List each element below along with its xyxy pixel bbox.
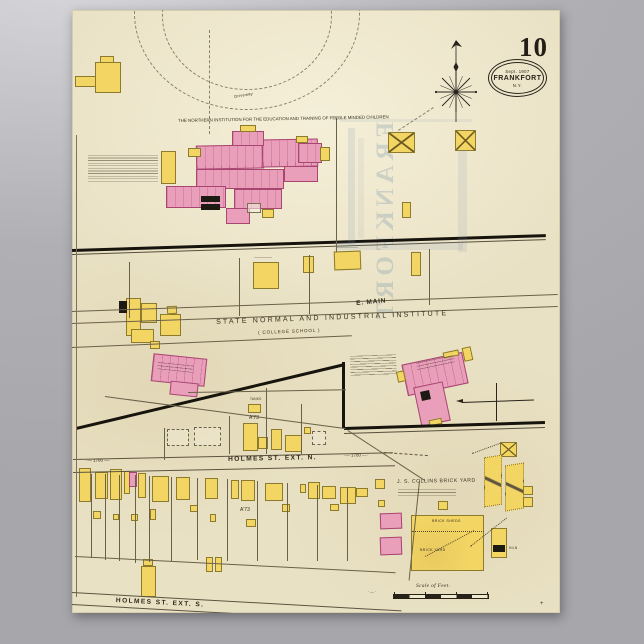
state-normal-title: STATE NORMAL AND INDUSTRIAL INSTITUTE: [216, 310, 448, 326]
compass-rose-icon: [430, 36, 482, 126]
map-line: [266, 388, 267, 454]
map-line: [149, 476, 150, 562]
map-line: [309, 255, 310, 314]
map-feature-layer: THE NORTHERN INSTITUTION FOR THE EDUCATI…: [72, 10, 560, 613]
building: [300, 484, 306, 493]
map-line: [105, 474, 106, 560]
building: [285, 435, 302, 452]
building: [194, 427, 221, 446]
map-line: [336, 118, 337, 252]
factory-notes: [350, 354, 397, 376]
building: [304, 427, 311, 434]
e-main-street: E. MAIN: [356, 298, 387, 307]
tanks-label: TANKS: [250, 398, 261, 401]
building: [231, 480, 239, 499]
building: [284, 166, 318, 182]
building: [150, 341, 160, 349]
building: [232, 131, 264, 146]
building: [201, 196, 220, 202]
building: [138, 473, 146, 498]
building: [160, 314, 181, 336]
building: [201, 204, 220, 210]
publisher-stamp: Sept. 1907 FRANKFORT N.Y.: [488, 59, 547, 97]
building: [455, 130, 476, 151]
building: [262, 209, 274, 218]
map-line: [119, 475, 120, 561]
building: [340, 487, 356, 504]
building: [167, 429, 189, 446]
map-line: [91, 474, 92, 558]
west-arrow-head-icon: [456, 399, 463, 403]
brick-yard-title: J. S. COLLINS BRICK YARD: [397, 479, 476, 486]
a73-upper: A'73: [249, 416, 259, 421]
building: [356, 488, 368, 497]
sanborn-map-poster: FRANKFORT THE NORTHERN INSTITUTION FOR T…: [72, 10, 560, 613]
building: [248, 404, 261, 413]
map-line: [171, 477, 172, 561]
building: [271, 429, 282, 450]
scale-dashes: · — ·: [368, 591, 376, 595]
map-line: [76, 135, 77, 597]
a73-lower: A'73: [240, 508, 250, 513]
map-line: [287, 483, 288, 561]
building: [169, 381, 198, 398]
building: [206, 557, 213, 572]
building: [95, 472, 108, 499]
building: [493, 545, 505, 552]
building: [95, 62, 121, 93]
building: [380, 513, 403, 530]
map-line: [317, 485, 318, 561]
map-line: [229, 416, 230, 454]
building: [484, 455, 502, 508]
map-line: [72, 234, 546, 251]
map-line: [429, 249, 430, 305]
building: [188, 148, 201, 157]
building: [523, 497, 533, 507]
block-number-left: ·— 1700 —·: [86, 459, 110, 464]
building: [330, 504, 339, 511]
brick-yard-label: BRICK YARD: [420, 549, 446, 553]
building: [438, 501, 448, 510]
building: [420, 390, 431, 401]
building: [334, 251, 362, 271]
ghost-bleed-band: [358, 138, 364, 238]
driveway-label: Driveway: [234, 92, 253, 99]
building: [93, 511, 101, 519]
building-label-lines-b: [254, 257, 272, 260]
ghost-bleed-band: [458, 150, 467, 252]
map-line: [129, 262, 130, 318]
building: [79, 468, 91, 502]
building: [296, 136, 308, 143]
map-line: [76, 363, 345, 429]
map-line: [384, 452, 428, 456]
map-line: [227, 479, 228, 561]
building: [523, 486, 533, 495]
building: [411, 252, 421, 276]
building: [161, 151, 176, 184]
building: [241, 480, 255, 501]
college-school-sub: ( COLLEGE SCHOOL ): [258, 329, 320, 336]
building: [375, 479, 385, 489]
map-line: [301, 404, 302, 454]
building: [380, 537, 403, 556]
building: [110, 469, 122, 500]
building: [322, 486, 336, 499]
map-line: [164, 428, 165, 460]
building: [176, 477, 190, 500]
building: [282, 504, 290, 512]
building: [240, 125, 256, 132]
building: [378, 500, 385, 507]
map-line: [496, 383, 497, 421]
map-stage: FRANKFORT THE NORTHERN INSTITUTION FOR T…: [0, 0, 644, 644]
map-line: [239, 258, 240, 316]
brick-yard-notes: [398, 489, 456, 497]
building: [141, 566, 156, 597]
building: [113, 514, 119, 520]
map-line: [472, 443, 501, 454]
map-line: [462, 399, 534, 402]
building: [243, 423, 258, 451]
scale-tick: [425, 592, 426, 595]
building: [505, 462, 524, 511]
scale-tick: [456, 592, 457, 595]
building: [119, 301, 127, 313]
kiln-label: KILN: [509, 547, 517, 550]
building: [500, 442, 517, 457]
building: [152, 476, 169, 502]
building: [205, 478, 218, 499]
map-line: [347, 487, 348, 561]
building: [388, 132, 415, 153]
building: [210, 514, 216, 522]
building: [462, 346, 474, 362]
building: [298, 143, 322, 163]
building: [491, 528, 507, 558]
building: [196, 144, 264, 169]
brick-sheds-label: BRICK SHEDS: [432, 520, 461, 524]
ghost-bleed-band: [335, 242, 463, 250]
building: [215, 557, 222, 572]
building: [246, 519, 256, 527]
map-line: [412, 531, 484, 532]
map-line: [72, 335, 352, 347]
map-line: [257, 481, 258, 561]
scale-tick: [487, 592, 488, 595]
scale-label: Scale of Feet.: [416, 584, 450, 590]
stamp-inner-ring: [491, 62, 544, 94]
institution-notes: [88, 155, 158, 183]
scale-bar: [393, 594, 489, 599]
building: [265, 483, 283, 501]
ghost-bleed-band: [348, 128, 355, 246]
building: [253, 262, 279, 289]
block-number-right: ·— 1700 —·: [344, 453, 368, 458]
building: [402, 202, 411, 218]
building: [100, 56, 114, 63]
building: [308, 482, 320, 499]
building: [312, 431, 326, 445]
map-line: [342, 362, 345, 428]
scale-tick: [394, 592, 395, 595]
holmes-ext-n-street: HOLMES ST. EXT. N.: [228, 455, 317, 463]
screenshot: { "poster": { "sheet_number": "10", "sta…: [0, 0, 644, 644]
building: [150, 509, 156, 520]
map-line: [197, 478, 198, 560]
building: [75, 76, 96, 87]
building: [320, 147, 330, 161]
map-line: [135, 475, 136, 563]
building: [247, 203, 261, 213]
sheet-number: 10: [519, 32, 548, 63]
margin-plus: +: [540, 601, 544, 607]
